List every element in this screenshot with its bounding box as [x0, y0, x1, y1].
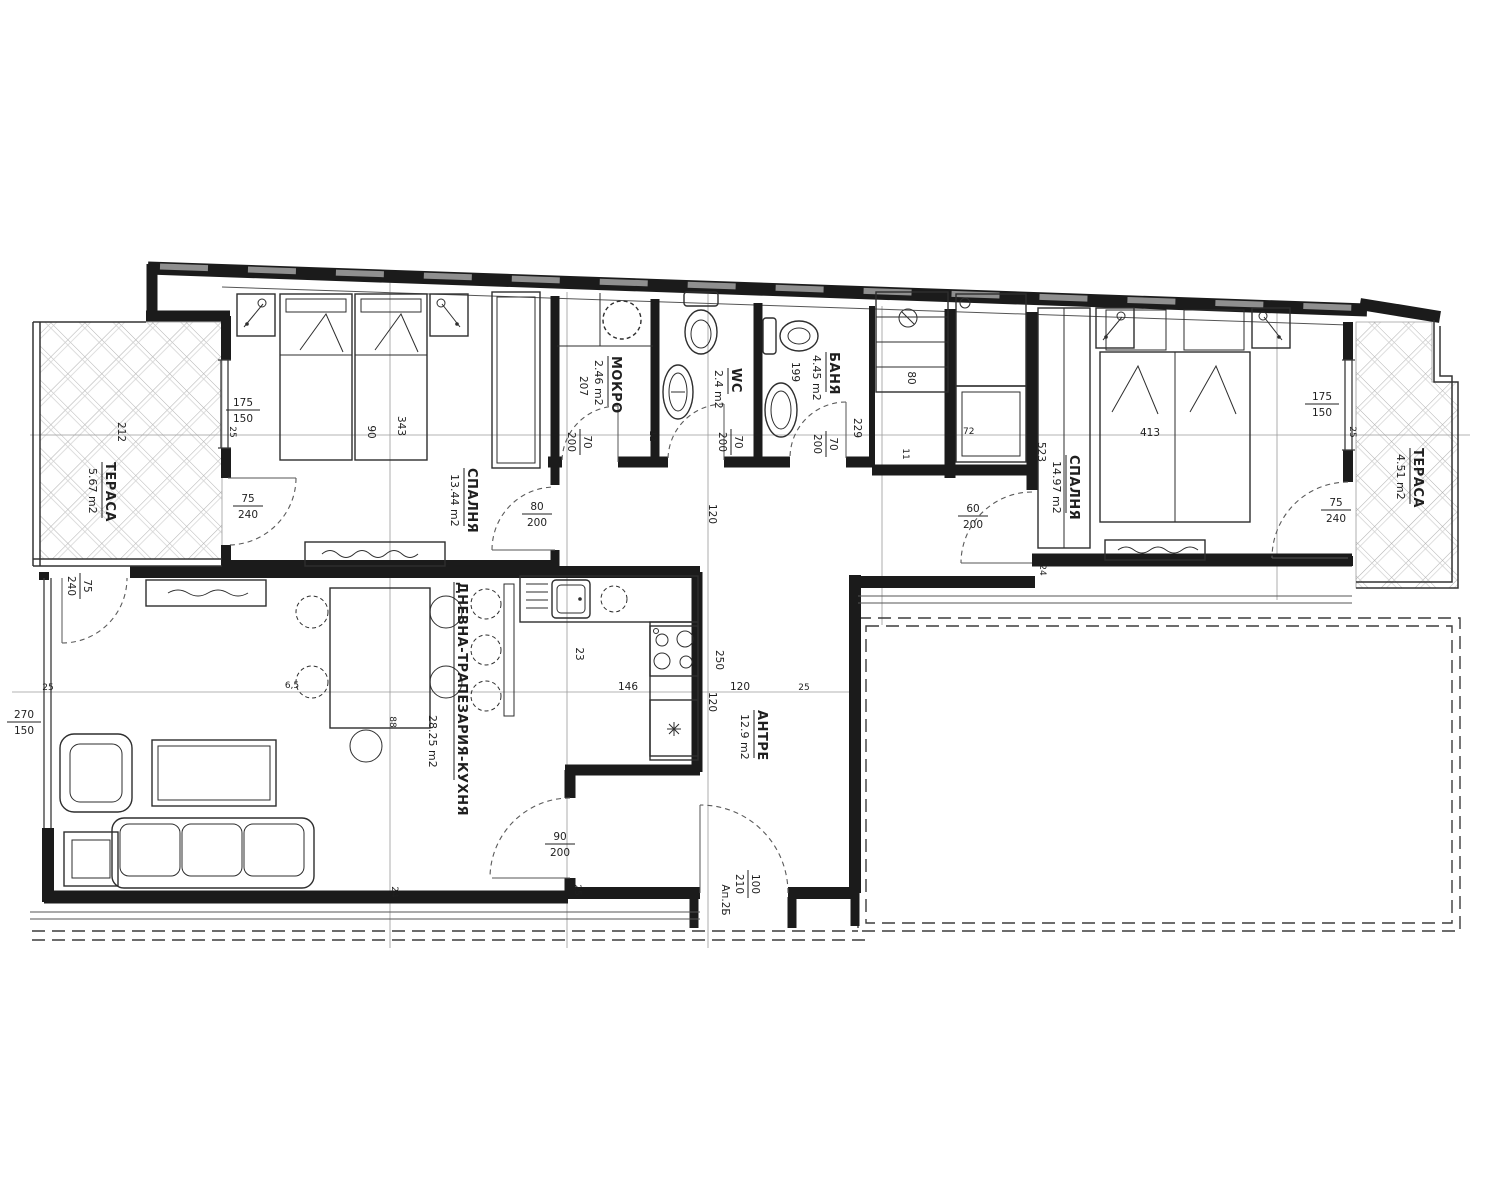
- svg-text:210: 210: [733, 874, 745, 894]
- bathroom-area: 4.45 m2: [810, 355, 823, 401]
- svg-text:80: 80: [530, 501, 543, 513]
- svg-text:150: 150: [233, 413, 253, 425]
- room-label-bathroom: БАНЯ 4.45 m2: [810, 352, 841, 401]
- svg-text:175: 175: [233, 397, 253, 409]
- nightstand-lamp-left: [237, 294, 275, 336]
- dim-wall-11: 11: [900, 448, 910, 459]
- door-wc: [668, 404, 724, 460]
- svg-text:70: 70: [732, 435, 744, 448]
- floor-plan-page: ТЕРАСА 5.67 m2 СПАЛНЯ 13.44 m2 МОКРО 2.4…: [0, 0, 1500, 1200]
- dim-counter-width: 146: [618, 681, 638, 693]
- bedroom1-furniture: [237, 292, 540, 566]
- dim-door-bed2: 60 200: [958, 503, 988, 531]
- sofa: [112, 818, 314, 888]
- dim-wall-12: 12: [647, 430, 657, 441]
- svg-text:240: 240: [238, 509, 258, 521]
- dining-table: [330, 588, 430, 728]
- room-label-terrace-left: ТЕРАСА 5.67 m2: [86, 462, 117, 522]
- bathroom-name: БАНЯ: [826, 352, 841, 395]
- terrace-left-area: 5.67 m2: [86, 468, 99, 514]
- washing-machine: [603, 301, 641, 339]
- bedroom1-area: 13.44 m2: [448, 474, 461, 527]
- svg-text:200: 200: [716, 432, 728, 452]
- room-label-wc: WC 2.4 m2: [712, 368, 743, 409]
- hall-area: 12.9 m2: [738, 714, 751, 760]
- svg-text:70: 70: [581, 435, 593, 448]
- tv-cabinet: [146, 580, 266, 606]
- dim-hall-width: 120: [706, 692, 718, 712]
- kitchen-sink: [552, 580, 590, 618]
- svg-text:200: 200: [811, 434, 823, 454]
- svg-text:150: 150: [1312, 407, 1332, 419]
- dim-door-bed1: 80 200: [522, 501, 552, 529]
- terrace-right-area: 4.51 m2: [1394, 454, 1407, 500]
- bedroom2-area: 14.97 m2: [1050, 461, 1063, 514]
- svg-text:75: 75: [1329, 497, 1342, 509]
- dim-table: 6,5: [285, 681, 299, 691]
- room-label-bedroom1: СПАЛНЯ 13.44 m2: [448, 468, 479, 533]
- dim-wall-25-e: 25: [572, 884, 582, 895]
- hall-name: АНТРЕ: [754, 710, 769, 761]
- svg-text:200: 200: [963, 519, 983, 531]
- floor-plan-drawing: ТЕРАСА 5.67 m2 СПАЛНЯ 13.44 m2 МОКРО 2.4…: [0, 0, 1500, 1200]
- terrace-right-name: ТЕРАСА: [1410, 448, 1425, 508]
- boiler: [899, 309, 917, 327]
- dim-laundry-depth: 207: [577, 376, 589, 396]
- dim-wall-24-a: 24: [389, 886, 399, 898]
- toilet-wc: [684, 292, 718, 354]
- bedroom2-furniture: [1038, 308, 1290, 560]
- dim-bath-depth: 199: [789, 362, 801, 382]
- dim-bed-width: 90: [365, 425, 377, 438]
- dim-terrace-left-width: 212: [115, 422, 127, 442]
- svg-text:75: 75: [81, 579, 93, 592]
- svg-text:Ап.2Б: Ап.2Б: [719, 884, 731, 915]
- svg-text:200: 200: [550, 847, 570, 859]
- nightstand-lamp-right: [430, 294, 468, 336]
- dim-wall-25-b: 25: [1347, 426, 1357, 437]
- wardrobe-bedroom2: [1038, 308, 1090, 548]
- living-area: 28.25 m2: [426, 715, 439, 768]
- dim-shelf-width: 80: [905, 371, 917, 384]
- dim-window-living: 270 150: [7, 709, 41, 737]
- nightstand-lamp-b2-left: [1096, 308, 1134, 348]
- sink-wc: [663, 365, 693, 419]
- wc-fixtures: [663, 292, 718, 419]
- dim-bath-width: 229: [851, 418, 863, 438]
- svg-text:200: 200: [527, 517, 547, 529]
- living-furniture: [60, 580, 314, 888]
- dim-door-kitchen: 90 200: [545, 831, 575, 859]
- svg-text:240: 240: [1326, 513, 1346, 525]
- svg-text:90: 90: [553, 831, 566, 843]
- dim-door-living-terrace: 75 240: [65, 573, 93, 599]
- dim-window-terrace-left: 175 150: [226, 397, 260, 425]
- room-label-laundry: МОКРО 2.46 m2: [592, 356, 623, 414]
- svg-text:240: 240: [65, 576, 77, 596]
- nightstand-lamp-b2-right: [1252, 308, 1290, 348]
- toilet-bath: [763, 318, 818, 354]
- terrace-left-name: ТЕРАСА: [102, 462, 117, 522]
- coffee-table: [152, 740, 276, 806]
- svg-text:270: 270: [14, 709, 34, 721]
- sink-bath: [765, 383, 797, 437]
- bedroom1-name: СПАЛНЯ: [464, 468, 479, 533]
- dim-bedroom2-width: 413: [1140, 427, 1160, 439]
- svg-text:70: 70: [827, 437, 839, 450]
- kitchen-bar: [471, 584, 514, 716]
- dim-wall-25-c: 25: [798, 683, 809, 693]
- room-label-hall: АНТРЕ 12.9 m2: [738, 710, 769, 761]
- kitchen-counter-right: [650, 622, 698, 760]
- dim-door-wc: 70 200: [716, 429, 744, 455]
- kitchen: [471, 576, 698, 760]
- svg-text:200: 200: [565, 432, 577, 452]
- dim-hall-120: 120: [730, 681, 750, 693]
- svg-text:150: 150: [14, 725, 34, 737]
- wardrobe-bedroom1: [492, 292, 540, 468]
- dim-wall-24-b: 24: [1037, 564, 1047, 576]
- wc-area: 2.4 m2: [712, 370, 725, 409]
- laundry-area: 2.46 m2: [592, 360, 605, 406]
- dim-door-bed2-terrace: 75 240: [1321, 497, 1351, 525]
- svg-text:75: 75: [241, 493, 254, 505]
- dim-corridor-width: 120: [706, 504, 718, 524]
- dim-door-laundry: 70 200: [565, 429, 593, 455]
- dim-chair: 88: [387, 716, 397, 728]
- double-bed: [1100, 310, 1250, 522]
- svg-text:60: 60: [966, 503, 979, 515]
- room-label-terrace-right: ТЕРАСА 4.51 m2: [1394, 448, 1425, 508]
- side-table: [64, 832, 118, 886]
- svg-text:175: 175: [1312, 391, 1332, 403]
- dim-window-terrace-right: 175 150: [1305, 391, 1339, 419]
- dim-wall-25-a: 25: [227, 426, 237, 437]
- dim-door-entry: Ап.2Б 100 210: [719, 870, 761, 916]
- dim-hall-length: 250: [713, 650, 725, 670]
- dim-door-bed1-terrace: 75 240: [233, 493, 263, 521]
- dim-bedroom2-depth: 523: [1035, 442, 1047, 462]
- bedroom2-name: СПАЛНЯ: [1066, 455, 1081, 520]
- armchair: [60, 734, 132, 812]
- dim-bed-length: 343: [395, 416, 407, 436]
- wc-name: WC: [728, 368, 743, 393]
- room-label-bedroom2: СПАЛНЯ 14.97 m2: [1050, 455, 1081, 520]
- terrace-left-floor: [40, 322, 222, 559]
- laundry-name: МОКРО: [608, 356, 623, 414]
- window-living-left: [44, 578, 51, 828]
- dim-counter-depth: 23: [573, 647, 585, 660]
- kitchen-counter-top: [520, 576, 698, 622]
- living-name: ДНЕВНА-ТРАПЕЗАРИЯ-КУХНЯ: [454, 582, 469, 816]
- dim-wall-25-d: 25: [42, 683, 53, 693]
- dim-pass-width: 72: [963, 427, 974, 437]
- room-label-living: ДНЕВНА-ТРАПЕЗАРИЯ-КУХНЯ 28.25 m2: [426, 582, 469, 816]
- svg-text:100: 100: [749, 874, 761, 894]
